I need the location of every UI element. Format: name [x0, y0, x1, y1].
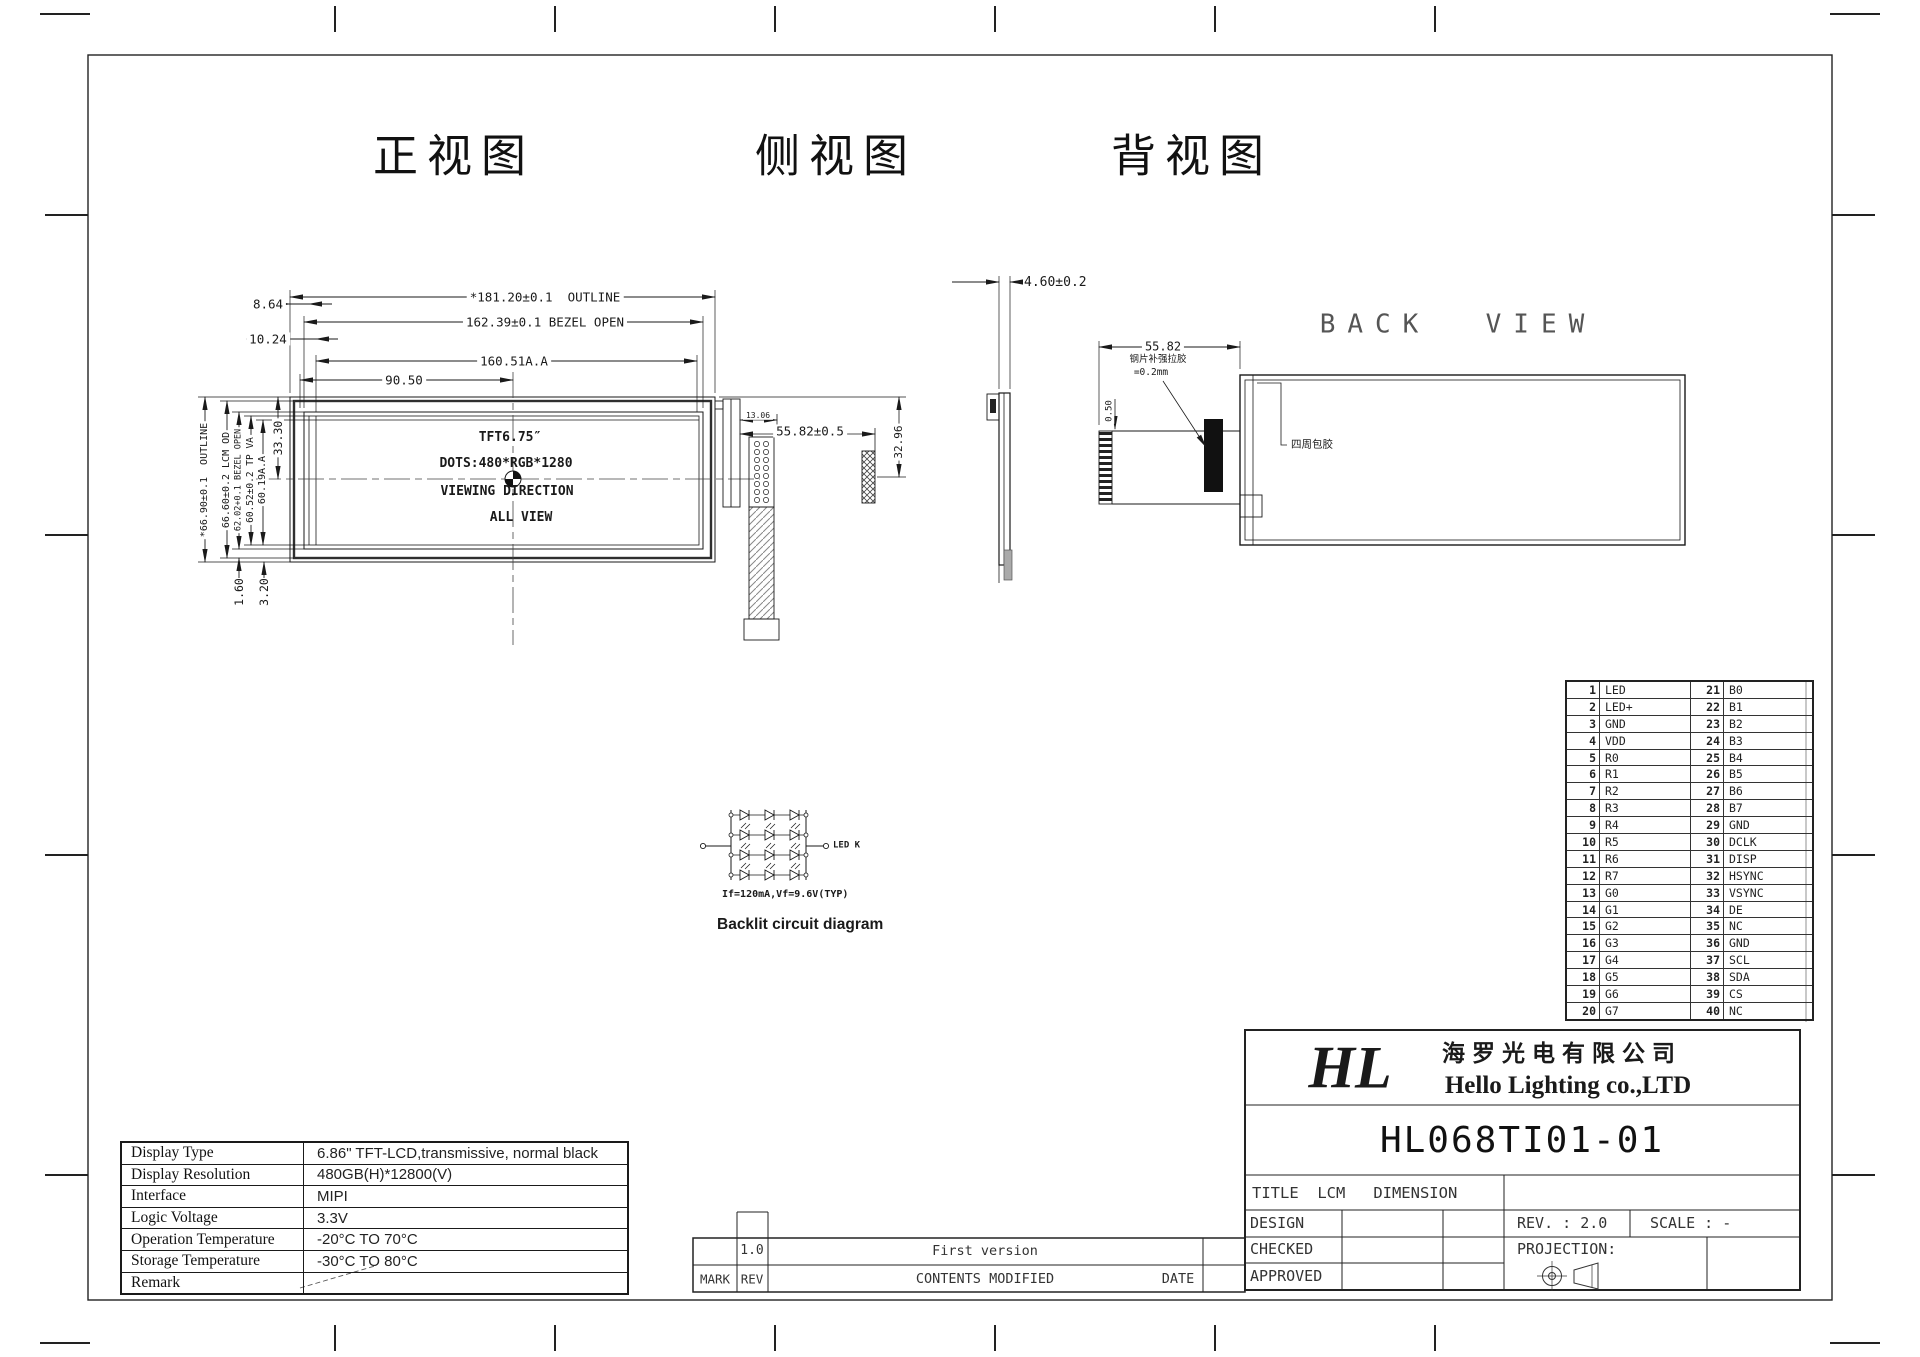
pin-name: CS: [1724, 986, 1814, 1003]
display-spec-table: Display Type 6.86" TFT-LCD,transmissive,…: [120, 1141, 629, 1295]
dim-half-width: 90.50: [382, 373, 426, 386]
spec-value: 3.3V: [304, 1207, 629, 1229]
contents-header: CONTENTS MODIFIED: [916, 1272, 1054, 1286]
pin-table-row: 13 G0 33 VSYNC: [1566, 884, 1813, 901]
pin-name: SCL: [1724, 952, 1814, 969]
stiffener-note-line1: 钢片补强拉胶: [1129, 355, 1186, 365]
pin-name: B3: [1724, 732, 1814, 749]
spec-label: Interface: [121, 1186, 304, 1208]
pin-name: R4: [1600, 817, 1691, 834]
pin-name: G5: [1600, 969, 1691, 986]
pin-name: NC: [1724, 918, 1814, 935]
pin-number: 39: [1691, 986, 1724, 1003]
pin-number: 34: [1691, 901, 1724, 918]
pin-name: R7: [1600, 867, 1691, 884]
pin-table-row: 18 G5 38 SDA: [1566, 969, 1813, 986]
revision-label: REV. : 2.0: [1517, 1216, 1607, 1232]
pin-number: 32: [1691, 867, 1724, 884]
pin-name: HSYNC: [1724, 867, 1814, 884]
pin-number: 35: [1691, 918, 1724, 935]
pin-table-row: 6 R1 26 B5: [1566, 766, 1813, 783]
dim-13-06: 13.06: [743, 412, 773, 420]
pin-number: 20: [1566, 1002, 1600, 1019]
pin-table-row: 5 R0 25 B4: [1566, 749, 1813, 766]
dim-active-area-height: 60.19A.A: [258, 454, 269, 506]
pin-name: VDD: [1600, 732, 1691, 749]
spec-value: [304, 1272, 629, 1294]
pin-name: G1: [1600, 901, 1691, 918]
pin-name: DE: [1724, 901, 1814, 918]
pin-name: B6: [1724, 783, 1814, 800]
viewing-direction-text: VIEWING DIRECTION: [440, 485, 573, 499]
pin-name: R3: [1600, 800, 1691, 817]
spec-row: Interface MIPI: [121, 1186, 628, 1208]
pin-name: G7: [1600, 1002, 1691, 1019]
pin-number: 12: [1566, 867, 1600, 884]
pin-name: G0: [1600, 884, 1691, 901]
pin-number: 1: [1566, 681, 1600, 698]
spec-row: Remark: [121, 1272, 628, 1294]
part-number: HL068TI01-01: [1380, 1122, 1664, 1160]
back-view-geometry: [1099, 341, 1685, 545]
backlight-spec-text: If=120mA,Vf=9.6V(TYP): [722, 890, 848, 901]
pin-table-row: 15 G2 35 NC: [1566, 918, 1813, 935]
spec-row: Logic Voltage 3.3V: [121, 1207, 628, 1229]
pin-name: G2: [1600, 918, 1691, 935]
pin-name: LED+: [1600, 698, 1691, 715]
pin-table-row: 17 G4 37 SCL: [1566, 952, 1813, 969]
pin-number: 11: [1566, 850, 1600, 867]
spec-row: Display Resolution 480GB(H)*12800(V): [121, 1164, 628, 1186]
dim-10-24: 10.24: [246, 332, 290, 345]
backlight-circuit: [700, 810, 828, 880]
pin-number: 9: [1566, 817, 1600, 834]
pin-number: 15: [1566, 918, 1600, 935]
pin-name: GND: [1600, 715, 1691, 732]
pin-number: 17: [1566, 952, 1600, 969]
spec-label: Display Resolution: [121, 1164, 304, 1186]
pin-number: 22: [1691, 698, 1724, 715]
dim-1-60: 1.60: [233, 578, 245, 606]
spec-label: Remark: [121, 1272, 304, 1294]
spec-label: Logic Voltage: [121, 1207, 304, 1229]
spec-value: 6.86" TFT-LCD,transmissive, normal black: [304, 1142, 629, 1164]
dim-3-20: 3.20: [258, 578, 270, 606]
pin-name: VSYNC: [1724, 884, 1814, 901]
scale-label: SCALE : -: [1650, 1216, 1731, 1232]
panel-size-text: TFT6.75″: [479, 431, 542, 445]
pin-number: 29: [1691, 817, 1724, 834]
pin-number: 4: [1566, 732, 1600, 749]
dim-0-50: 0.50: [1105, 398, 1114, 424]
checked-label: CHECKED: [1250, 1242, 1313, 1258]
pin-number: 31: [1691, 850, 1724, 867]
approved-label: APPROVED: [1250, 1269, 1322, 1285]
spec-value: 480GB(H)*12800(V): [304, 1164, 629, 1186]
pin-number: 36: [1691, 935, 1724, 952]
dim-bezel-height: 62.02+0.1 BEZEL OPEN: [235, 427, 244, 533]
pin-table-row: 2 LED+ 22 B1: [1566, 698, 1813, 715]
revision-content: First version: [932, 1244, 1038, 1258]
spec-label: Storage Temperature: [121, 1250, 304, 1272]
pin-name: SDA: [1724, 969, 1814, 986]
pin-number: 27: [1691, 783, 1724, 800]
pin-number: 28: [1691, 800, 1724, 817]
spec-value: -30°C TO 80°C: [304, 1250, 629, 1272]
stiffener-note-line2: =0.2mm: [1134, 368, 1168, 378]
pin-number: 16: [1566, 935, 1600, 952]
pin-number: 38: [1691, 969, 1724, 986]
dim-outline-width: *181.20±0.1 OUTLINE: [467, 290, 624, 303]
pin-number: 3: [1566, 715, 1600, 732]
revision-value: 1.0: [740, 1244, 763, 1258]
perimeter-glue-label: 四周包胶: [1291, 439, 1333, 450]
dim-33-30: 33.30: [272, 419, 284, 458]
dim-tp-height: 60.52±0.2 TP VA: [246, 435, 256, 525]
pin-table-row: 10 R5 30 DCLK: [1566, 834, 1813, 851]
pin-name: R2: [1600, 783, 1691, 800]
pin-name: B1: [1724, 698, 1814, 715]
pin-number: 37: [1691, 952, 1724, 969]
spec-value: -20°C TO 70°C: [304, 1229, 629, 1251]
pin-number: 26: [1691, 766, 1724, 783]
pin-table-row: 1 LED 21 B0: [1566, 681, 1813, 698]
pin-table-row: 14 G1 34 DE: [1566, 901, 1813, 918]
pin-number: 30: [1691, 834, 1724, 851]
dim-lcm-height: 66.60±0.2 LCM OD: [222, 430, 233, 530]
pin-name: DISP: [1724, 850, 1814, 867]
dim-fpc-width: 55.82±0.5: [773, 424, 847, 437]
back-view-title: 背视图: [1111, 133, 1273, 180]
pin-table-row: 20 G7 40 NC: [1566, 1002, 1813, 1019]
pin-name: G6: [1600, 986, 1691, 1003]
company-name-en: Hello Lighting co.,LTD: [1445, 1073, 1691, 1099]
date-header: DATE: [1162, 1272, 1195, 1286]
pin-table-row: 4 VDD 24 B3: [1566, 732, 1813, 749]
pin-name: R5: [1600, 834, 1691, 851]
dim-8-64: 8.64: [250, 297, 286, 310]
side-view-title: 侧视图: [755, 133, 917, 180]
led-cathode-label: LED K: [833, 841, 860, 850]
pin-number: 8: [1566, 800, 1600, 817]
dim-back-fpc-width: 55.82: [1142, 341, 1184, 354]
pin-table-row: 16 G3 36 GND: [1566, 935, 1813, 952]
side-view-geometry: [952, 276, 1018, 583]
pin-assignment-table: 1 LED 21 B0 2 LED+ 22 B1 3 GND 23 B2 4 V…: [1565, 680, 1814, 1021]
spec-value: MIPI: [304, 1186, 629, 1208]
dim-thickness: 4.60±0.2: [1024, 276, 1087, 290]
pin-number: 40: [1691, 1002, 1724, 1019]
pin-table-row: 8 R3 28 B7: [1566, 800, 1813, 817]
pin-number: 10: [1566, 834, 1600, 851]
pin-table-row: 19 G6 39 CS: [1566, 986, 1813, 1003]
pin-table-row: 3 GND 23 B2: [1566, 715, 1813, 732]
pin-name: B0: [1724, 681, 1814, 698]
pin-number: 23: [1691, 715, 1724, 732]
spec-label: Operation Temperature: [121, 1229, 304, 1251]
pin-number: 33: [1691, 884, 1724, 901]
pin-name: GND: [1724, 935, 1814, 952]
pin-number: 19: [1566, 986, 1600, 1003]
dim-bezel-width: 162.39±0.1 BEZEL OPEN: [463, 315, 627, 328]
spec-label: Display Type: [121, 1142, 304, 1164]
spec-row: Storage Temperature -30°C TO 80°C: [121, 1250, 628, 1272]
pin-number: 21: [1691, 681, 1724, 698]
title-row: TITLE LCM DIMENSION: [1252, 1185, 1457, 1201]
rev-header: REV: [741, 1272, 764, 1285]
pin-name: G3: [1600, 935, 1691, 952]
company-logo: HL: [1308, 1037, 1391, 1100]
pin-number: 2: [1566, 698, 1600, 715]
pin-table-row: 12 R7 32 HSYNC: [1566, 867, 1813, 884]
pin-number: 14: [1566, 901, 1600, 918]
pin-name: B4: [1724, 749, 1814, 766]
pin-name: G4: [1600, 952, 1691, 969]
pin-name: LED: [1600, 681, 1691, 698]
pin-name: R6: [1600, 850, 1691, 867]
panel-dots-text: DOTS:480*RGB*1280: [439, 457, 572, 471]
backlight-caption: Backlit circuit diagram: [717, 917, 883, 933]
pin-number: 5: [1566, 749, 1600, 766]
dim-fpc-height: 32.96: [893, 423, 905, 460]
front-view-title: 正视图: [373, 133, 535, 180]
pin-number: 24: [1691, 732, 1724, 749]
engineering-drawing-page: 正视图 侧视图 背视图 BACK VIEW *181.20±0.1 OUTLIN…: [0, 0, 1920, 1357]
pin-name: R0: [1600, 749, 1691, 766]
pin-name: R1: [1600, 766, 1691, 783]
mark-header: MARK: [700, 1272, 730, 1285]
pin-number: 18: [1566, 969, 1600, 986]
pin-name: NC: [1724, 1002, 1814, 1019]
projection-label: PROJECTION:: [1517, 1242, 1616, 1258]
dim-outline-height: *66.90±0.1 OUTLINE: [200, 421, 211, 539]
pin-number: 6: [1566, 766, 1600, 783]
pin-table-row: 7 R2 27 B6: [1566, 783, 1813, 800]
design-label: DESIGN: [1250, 1216, 1304, 1232]
pin-name: DCLK: [1724, 834, 1814, 851]
pin-name: GND: [1724, 817, 1814, 834]
spec-row: Display Type 6.86" TFT-LCD,transmissive,…: [121, 1142, 628, 1164]
pin-number: 25: [1691, 749, 1724, 766]
dim-active-area-width: 160.51A.A: [477, 354, 551, 367]
pin-number: 13: [1566, 884, 1600, 901]
all-view-text: ALL VIEW: [490, 511, 553, 525]
pin-name: B7: [1724, 800, 1814, 817]
back-view-label: BACK VIEW: [1320, 311, 1597, 338]
spec-row: Operation Temperature -20°C TO 70°C: [121, 1229, 628, 1251]
pin-table-row: 11 R6 31 DISP: [1566, 850, 1813, 867]
pin-name: B5: [1724, 766, 1814, 783]
pin-table-row: 9 R4 29 GND: [1566, 817, 1813, 834]
pin-name: B2: [1724, 715, 1814, 732]
company-name-cn: 海罗光电有限公司: [1442, 1041, 1682, 1065]
pin-number: 7: [1566, 783, 1600, 800]
